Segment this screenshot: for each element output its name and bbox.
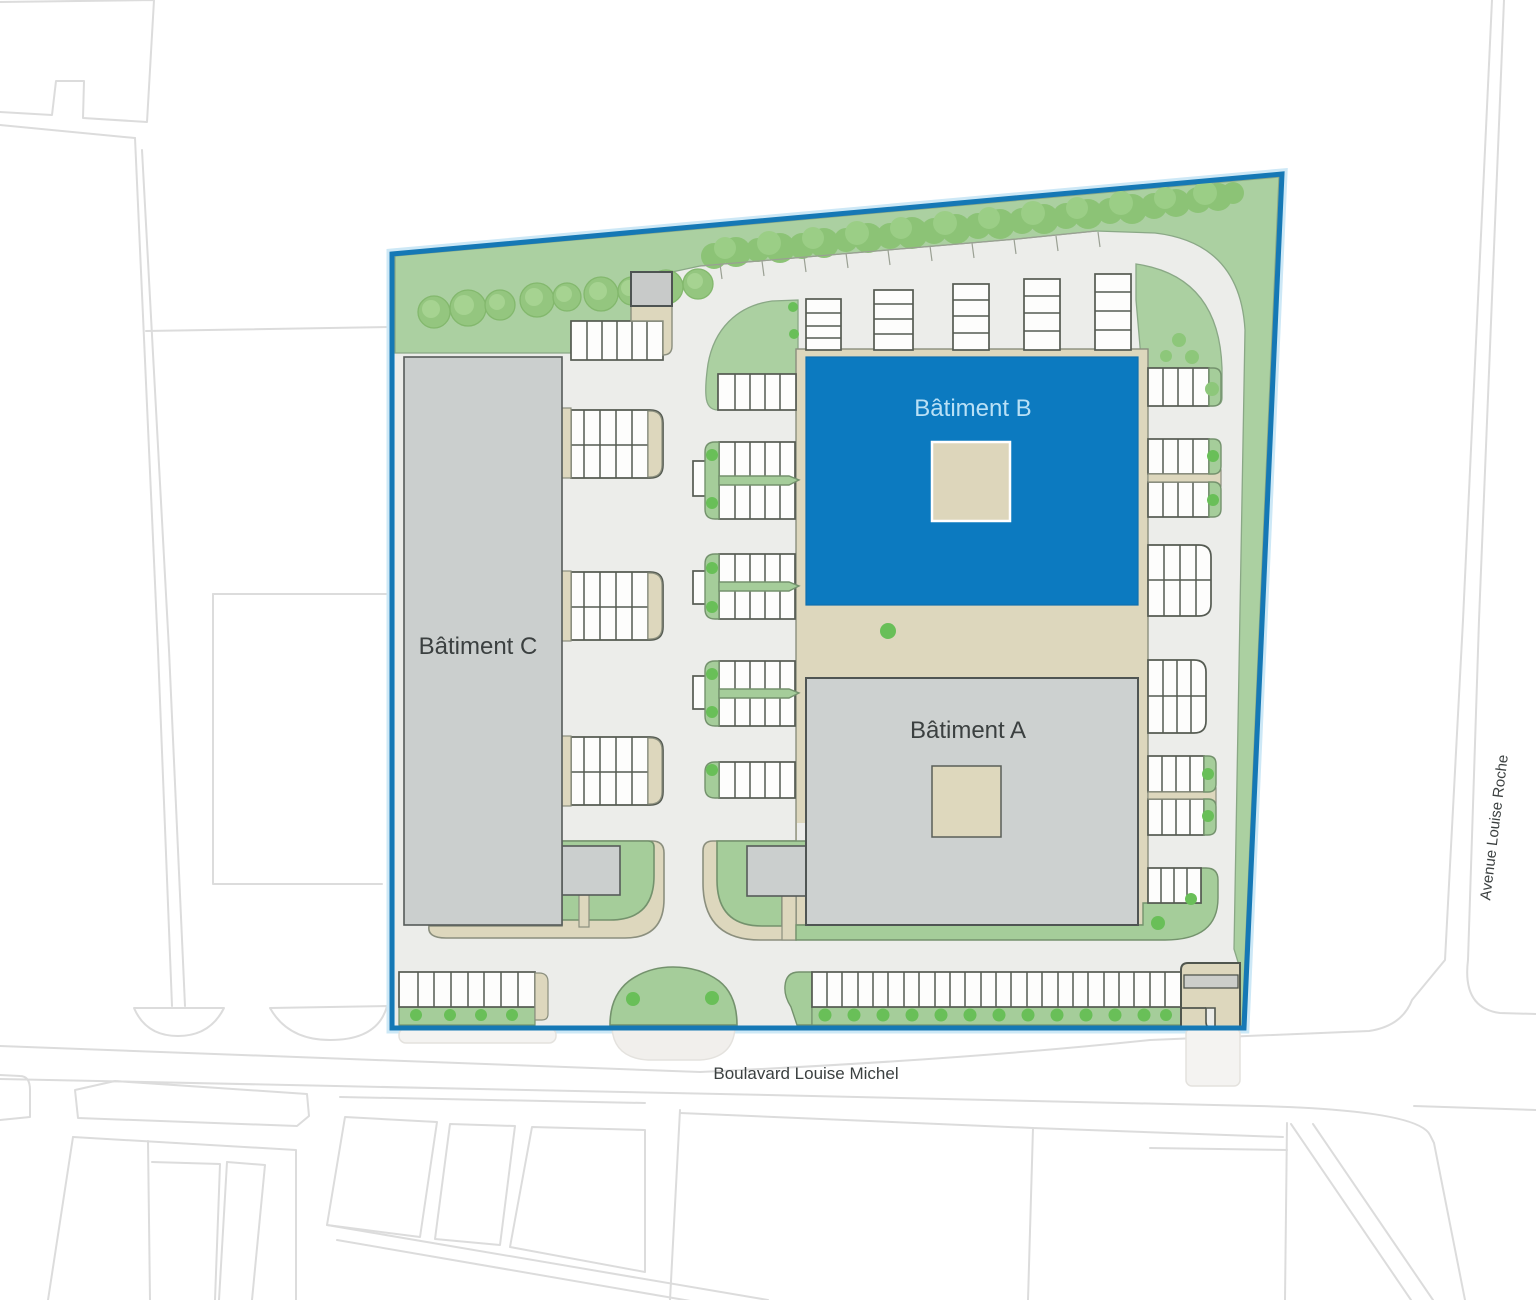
svg-text:Boulavard Louise Michel: Boulavard Louise Michel: [713, 1064, 898, 1083]
svg-text:Bâtiment A: Bâtiment A: [910, 717, 1026, 744]
svg-text:Bâtiment B: Bâtiment B: [914, 395, 1031, 422]
svg-text:Bâtiment C: Bâtiment C: [419, 633, 538, 660]
